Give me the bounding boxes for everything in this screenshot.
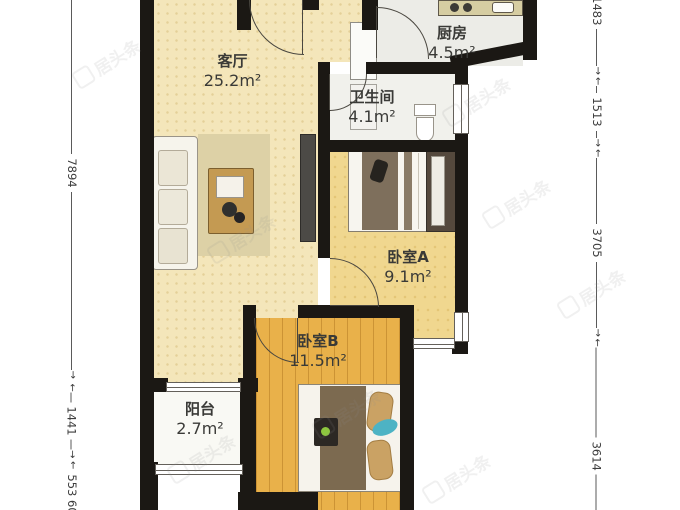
room-name: 卧室B [266, 332, 370, 351]
tv-unit [300, 134, 316, 242]
room-label-bedroom-b: 卧室B 11.5m² [266, 332, 370, 371]
dim-right-1513: ← 1513 → [589, 76, 605, 148]
room-name: 厨房 [400, 24, 504, 43]
dim-arrow: → [67, 370, 77, 380]
dim-label: 1483 [590, 0, 604, 29]
dim-arrow: → [67, 449, 77, 459]
dim-arrow: ← [592, 148, 602, 158]
wall [238, 378, 258, 392]
dim-left-7894: ← 7894 → [64, 0, 80, 380]
bed-a-blanket [404, 152, 412, 230]
room-label-balcony: 阳台 2.7m² [150, 400, 250, 439]
window [413, 338, 455, 349]
wall [400, 312, 414, 510]
kitchen-sink [492, 2, 514, 13]
dim-left-553: ← 553 60 [64, 460, 80, 510]
dim-label: 1441 [65, 402, 79, 439]
bedroom-a-door-leaf [330, 305, 378, 306]
balcony-window [166, 382, 241, 392]
dim-label: 553 60 [65, 470, 79, 510]
room-name: 客厅 [175, 52, 290, 71]
pillow [366, 439, 395, 482]
room-name: 阳台 [150, 400, 250, 419]
watermark-logo-icon [481, 204, 507, 230]
sofa-cushion [158, 150, 188, 186]
dim-left-1441: ← 1441 → [64, 383, 80, 460]
dim-arrow: ← [592, 338, 602, 348]
room-area: 4.5m² [400, 43, 504, 63]
stove-burner [463, 3, 472, 12]
watermark-text: 居头条 [89, 32, 145, 80]
room-label-living: 客厅 25.2m² [175, 52, 290, 91]
room-name: 卧室A [356, 248, 460, 267]
room-area: 9.1m² [356, 267, 460, 287]
room-area: 4.1m² [320, 107, 424, 127]
dim-arrow: ← [592, 76, 602, 86]
room-label-kitchen: 厨房 4.5m² [400, 24, 504, 63]
window [454, 312, 469, 342]
room-label-bath: 卫生间 4.1m² [320, 88, 424, 127]
dim-arrow: → [592, 66, 602, 76]
wall [366, 62, 468, 74]
watermark-text: 居头条 [499, 172, 555, 220]
watermark-logo-icon [421, 479, 447, 505]
mattress-fold-line [418, 153, 419, 229]
room-area: 11.5m² [266, 351, 370, 371]
stove-burner [450, 3, 459, 12]
dim-label: 3705 [590, 224, 604, 261]
watermark: 居头条 [69, 32, 145, 92]
kitchen-door-leaf [376, 6, 377, 58]
sofa-cushion [158, 189, 188, 225]
nightstand-lamp [321, 427, 330, 436]
room-label-bedroom-a: 卧室A 9.1m² [356, 248, 460, 287]
balcony-window [155, 464, 243, 475]
dim-right-3705: ← 3705 → [589, 148, 605, 338]
dim-right-1483: 1483 → [589, 0, 605, 76]
wardrobe-door [431, 156, 445, 226]
dim-label: 3614 [590, 438, 604, 475]
dim-arrow: → [592, 328, 602, 338]
watermark: 居头条 [479, 172, 555, 232]
room-area: 25.2m² [175, 71, 290, 91]
dim-label: 1513 [590, 93, 604, 130]
sofa-cushion [158, 228, 188, 264]
dim-arrow: → [592, 138, 602, 148]
window [453, 84, 469, 134]
watermark-text: 居头条 [439, 447, 495, 495]
watermark-logo-icon [556, 294, 582, 320]
wall [140, 378, 168, 392]
watermark: 居头条 [419, 447, 495, 507]
room-name: 卫生间 [320, 88, 424, 107]
dim-arrow: ← [67, 383, 77, 393]
room-area: 2.7m² [150, 419, 250, 439]
wall [318, 140, 468, 152]
table-tray [216, 176, 244, 198]
entrance-door-leaf [302, 0, 303, 54]
bedroom-a-floor-ext [413, 305, 455, 340]
dim-label: 7894 [65, 154, 79, 191]
wall [238, 492, 318, 510]
dim-arrow: ← [67, 460, 77, 470]
teacup [234, 212, 245, 223]
dim-right-3614: ← 3614 [589, 338, 605, 510]
wall [303, 0, 319, 10]
floorplan-canvas: 客厅 25.2m² 厨房 4.5m² 卫生间 4.1m² 卧室A 9.1m² 卧… [0, 0, 680, 510]
